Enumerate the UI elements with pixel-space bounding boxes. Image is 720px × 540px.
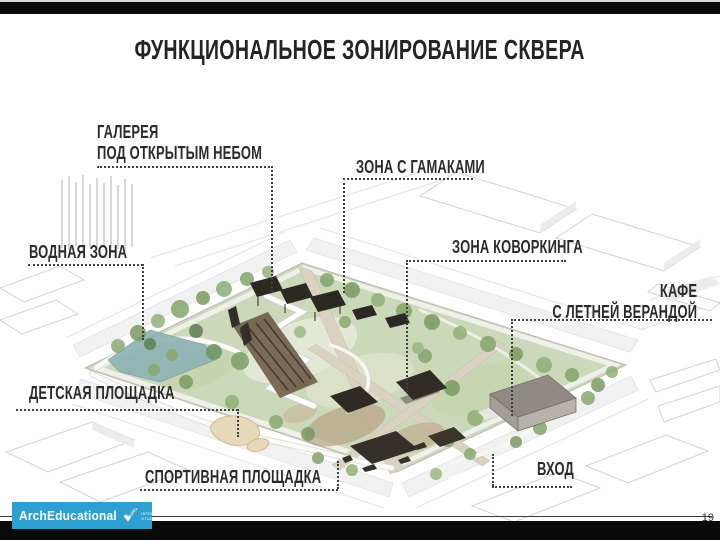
leader-children-h	[16, 409, 238, 411]
leader-sport-h	[140, 489, 338, 491]
logo-tagline-line2: STUDENT CONTEST	[141, 516, 183, 521]
leader-sport-v	[337, 461, 339, 489]
letterbox-top-bar	[0, 0, 720, 14]
leader-cafe-v	[511, 319, 513, 416]
archeducational-logo: ArchEducational 2020 INTERNATIONAL STUDE…	[12, 502, 152, 529]
leader-gallery-v	[271, 166, 273, 292]
leader-children-v	[237, 409, 239, 437]
leader-gallery-h	[97, 166, 273, 168]
label-cafe-line2: С ЛЕТНЕЙ ВЕРАНДОЙ	[552, 302, 697, 323]
park-illustration	[0, 0, 720, 540]
logo-tagline: INTERNATIONAL STUDENT CONTEST	[141, 511, 183, 521]
logo-name: ArchEducational	[19, 508, 117, 523]
leader-hammocks-h	[343, 178, 473, 180]
label-water: ВОДНАЯ ЗОНА	[29, 242, 127, 263]
label-entrance: ВХОД	[537, 459, 574, 480]
leader-water-h	[28, 264, 143, 266]
page-title-text: ФУНКЦИОНАЛЬНОЕ ЗОНИРОВАНИЕ СКВЕРА	[135, 34, 585, 66]
label-coworking: ЗОНА КОВОРКИНГА	[452, 237, 583, 258]
leader-water-v	[142, 264, 144, 340]
label-gallery: ГАЛЕРЕЯ ПОД ОТКРЫТЫМ НЕБОМ	[97, 122, 262, 164]
park	[85, 263, 626, 482]
label-sport: СПОРТИВНАЯ ПЛОЩАДКА	[145, 467, 321, 488]
label-cafe: КАФЕ С ЛЕТНЕЙ ВЕРАНДОЙ	[552, 281, 697, 323]
leader-entrance-v	[492, 454, 494, 486]
label-cafe-line1: КАФЕ	[552, 281, 697, 302]
label-children: ДЕТСКАЯ ПЛОЩАДКА	[29, 383, 175, 404]
label-gallery-line1: ГАЛЕРЕЯ	[97, 122, 262, 143]
page-title: ФУНКЦИОНАЛЬНОЕ ЗОНИРОВАНИЕ СКВЕРА	[0, 34, 720, 66]
leader-coworking-v	[406, 260, 408, 392]
label-hammocks: ЗОНА С ГАМАКАМИ	[356, 157, 485, 178]
leader-entrance-h	[492, 486, 572, 488]
check-ribbon-icon: 2020	[122, 507, 139, 524]
leader-coworking-h	[406, 260, 566, 262]
leader-hammocks-v	[343, 178, 345, 293]
label-gallery-line2: ПОД ОТКРЫТЫМ НЕБОМ	[97, 143, 262, 164]
